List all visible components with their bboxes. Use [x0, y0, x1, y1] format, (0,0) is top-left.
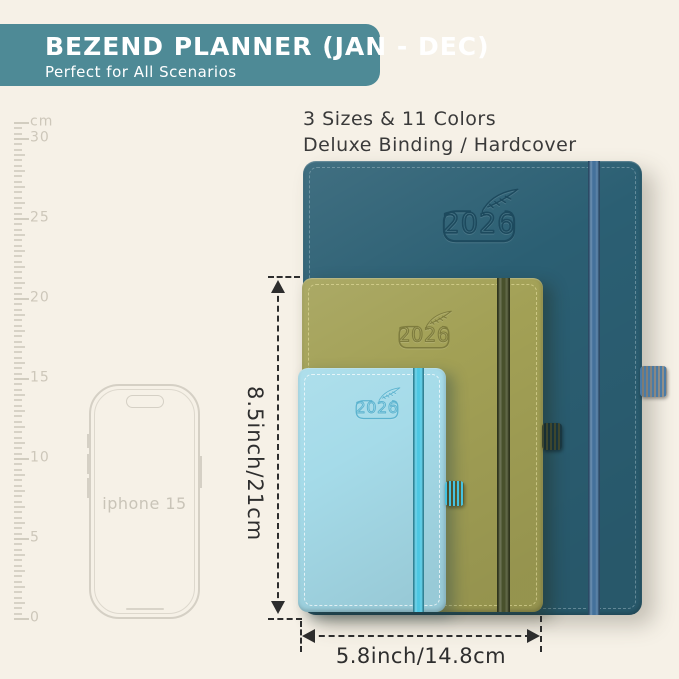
height-dimension-line: [277, 286, 279, 608]
product-subtitle: Perfect for All Scenarios: [45, 63, 380, 81]
ruler-tick: [14, 447, 22, 449]
ruler-tick: [14, 287, 22, 289]
ruler-tick: [14, 362, 25, 364]
ruler-tick: [14, 127, 22, 129]
year-text: 2026: [398, 324, 449, 347]
ruler-tick: [14, 383, 22, 385]
ruler-tick: [14, 410, 25, 412]
ruler-tick: [14, 570, 25, 572]
ruler-tick: [14, 405, 22, 407]
ruler-tick: [14, 261, 22, 263]
ruler-tick: [14, 314, 25, 316]
ruler-tick: [14, 527, 22, 529]
ruler-tick: [14, 341, 22, 343]
ruler-number-label: 10: [30, 450, 50, 466]
phone-port: [126, 608, 164, 610]
arrow-left-icon: [302, 629, 315, 643]
ruler-tick: [14, 367, 22, 369]
ruler-tick: [14, 165, 22, 167]
ruler-tick: [14, 197, 22, 199]
ruler-tick: [14, 213, 22, 215]
ruler-tick: [14, 234, 25, 236]
phone-label: iphone 15: [91, 494, 198, 513]
extension-line-bottom: [268, 618, 302, 620]
ruler-tick: [14, 277, 22, 279]
ruler-number-label: 15: [30, 370, 50, 386]
ruler-number-label: 25: [30, 210, 50, 226]
ruler-tick: [14, 149, 22, 151]
width-dimension-line: [309, 635, 531, 637]
pen-loop: [640, 366, 667, 397]
ruler-tick: [14, 229, 22, 231]
ruler-tick: [14, 575, 22, 577]
ruler-tick: [14, 266, 25, 268]
ruler-tick: [14, 559, 22, 561]
ruler-tick: [14, 346, 25, 348]
ruler-number-label: 20: [30, 290, 50, 306]
ruler: cm 302520151050: [0, 0, 60, 679]
ruler-tick: [14, 495, 22, 497]
ruler-tick: [14, 506, 25, 508]
product-title: BEZEND PLANNER (JAN - DEC): [45, 32, 380, 61]
feature-line-sizes: 3 Sizes & 11 Colors: [303, 106, 577, 132]
ruler-tick: [14, 239, 22, 241]
ruler-tick: [14, 591, 22, 593]
arrow-up-icon: [271, 280, 285, 293]
ruler-tick: [14, 522, 25, 524]
ruler-tick: [14, 549, 22, 551]
ruler-tick: [14, 490, 25, 492]
arrow-down-icon: [271, 601, 285, 614]
ruler-tick: [14, 373, 22, 375]
ruler-tick: [14, 133, 22, 135]
ruler-tick: [14, 159, 22, 161]
ruler-tick: [14, 597, 22, 599]
ruler-tick: [14, 463, 22, 465]
phone-outline: iphone 15: [89, 384, 200, 619]
phone-power-button: [200, 456, 202, 488]
ruler-number-label: 0: [30, 610, 40, 626]
ruler-tick: [14, 154, 25, 156]
feature-line-binding: Deluxe Binding / Hardcover: [303, 132, 577, 158]
year-text: 2026: [355, 398, 398, 417]
ruler-tick: [14, 298, 29, 300]
ruler-tick: [14, 223, 22, 225]
ruler-tick: [14, 442, 25, 444]
ruler-tick: [14, 175, 22, 177]
ruler-unit-label: cm: [30, 114, 53, 130]
pen-loop: [445, 481, 464, 506]
year-text: 2026: [443, 208, 516, 239]
product-infographic: BEZEND PLANNER (JAN - DEC) Perfect for A…: [0, 0, 679, 679]
ruler-tick: [14, 453, 22, 455]
ruler-tick: [14, 309, 22, 311]
ruler-tick: [14, 330, 25, 332]
ruler-tick: [14, 186, 25, 188]
ruler-tick: [14, 415, 22, 417]
ruler-tick: [14, 607, 22, 609]
planner-small-blue: 2026: [298, 368, 446, 612]
feature-text: 3 Sizes & 11 Colors Deluxe Binding / Har…: [303, 106, 577, 158]
ruler-tick: [14, 293, 22, 295]
phone-volume-down-button: [87, 478, 89, 498]
ruler-tick: [14, 250, 25, 252]
year-logo: 2026: [393, 315, 455, 352]
year-logo: 2026: [435, 195, 523, 247]
ruler-tick: [14, 122, 29, 124]
ruler-tick: [14, 394, 25, 396]
ruler-tick: [14, 319, 22, 321]
ruler-tick: [14, 511, 22, 513]
ruler-tick: [14, 191, 22, 193]
height-dimension-label: 8.5inch/21cm: [243, 386, 267, 541]
ruler-tick: [14, 538, 29, 540]
ruler-tick: [14, 138, 29, 140]
phone-dynamic-island: [126, 395, 164, 408]
ruler-tick: [14, 602, 25, 604]
ruler-tick: [14, 586, 25, 588]
ruler-tick: [14, 170, 25, 172]
year-logo: 2026: [351, 391, 403, 422]
extension-line-top: [268, 276, 300, 278]
ruler-tick: [14, 485, 22, 487]
ruler-tick: [14, 479, 22, 481]
ruler-tick: [14, 421, 22, 423]
ruler-tick: [14, 255, 22, 257]
ruler-tick: [14, 581, 22, 583]
extension-line-right: [540, 616, 542, 652]
ruler-number-label: 5: [30, 530, 40, 546]
ruler-tick: [14, 474, 25, 476]
ruler-tick: [14, 613, 22, 615]
ruler-tick: [14, 143, 22, 145]
ruler-tick: [14, 554, 25, 556]
phone-mute-switch: [87, 434, 89, 448]
ruler-tick: [14, 303, 22, 305]
ruler-tick: [14, 335, 22, 337]
ruler-tick: [14, 245, 22, 247]
ruler-tick: [14, 399, 22, 401]
phone-volume-up-button: [87, 454, 89, 474]
ruler-tick: [14, 543, 22, 545]
ruler-tick: [14, 202, 25, 204]
ruler-tick: [14, 565, 22, 567]
ruler-tick: [14, 469, 22, 471]
arrow-right-icon: [527, 629, 540, 643]
ruler-tick: [14, 325, 22, 327]
ruler-tick: [14, 271, 22, 273]
ruler-tick: [14, 437, 22, 439]
ruler-tick: [14, 431, 22, 433]
ruler-number-label: 30: [30, 130, 50, 146]
ruler-tick: [14, 207, 22, 209]
width-dimension-label: 5.8inch/14.8cm: [310, 644, 532, 668]
ruler-tick: [14, 218, 29, 220]
ruler-tick: [14, 378, 29, 380]
pen-loop: [542, 423, 562, 450]
ruler-tick: [14, 351, 22, 353]
ruler-tick: [14, 618, 29, 620]
ruler-tick: [14, 458, 29, 460]
ruler-tick: [14, 282, 25, 284]
ruler-tick: [14, 389, 22, 391]
ruler-tick: [14, 357, 22, 359]
elastic-band: [588, 161, 600, 615]
ruler-tick: [14, 517, 22, 519]
ruler-tick: [14, 533, 22, 535]
ruler-tick: [14, 426, 25, 428]
elastic-band: [413, 368, 424, 612]
ruler-tick: [14, 181, 22, 183]
elastic-band: [497, 278, 510, 612]
ruler-tick: [14, 501, 22, 503]
